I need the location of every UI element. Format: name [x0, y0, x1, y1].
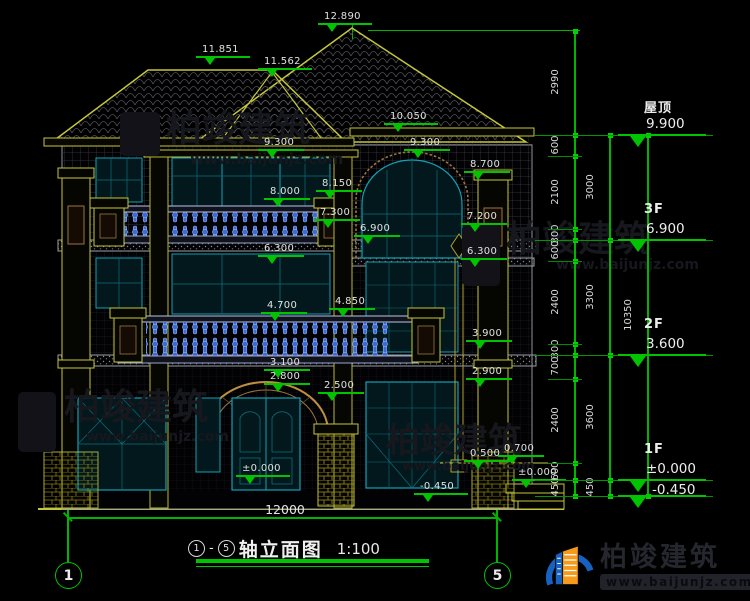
level-name: 1F	[644, 442, 664, 457]
elevation-value: 8.700	[464, 160, 510, 170]
level-value: 9.900	[646, 116, 685, 132]
elevation-marker: 4.850	[329, 297, 375, 310]
drawing-title: 1 - 5 轴立面图 1:100	[188, 535, 468, 562]
elevation-value: 3.100	[264, 358, 310, 368]
elevation-marker: 10.050	[384, 112, 438, 125]
title-underline-2	[196, 566, 429, 568]
dim-tick	[573, 29, 578, 34]
title-axis-from: 1	[188, 540, 205, 557]
elevation-value: 9.300	[258, 138, 304, 148]
elevation-value: 4.700	[261, 301, 307, 311]
title-axis-to: 5	[218, 540, 235, 557]
elevation-marker: 0.500	[464, 449, 510, 462]
elevation-marker: 6.300	[258, 244, 304, 257]
title-text: 轴立面图	[239, 535, 323, 562]
elevation-marker: 11.562	[258, 57, 312, 70]
elevation-marker: 2.800	[264, 372, 310, 385]
dim-value: 600	[551, 222, 561, 278]
elevation-value: 12.890	[318, 12, 372, 22]
annotation-layer: 12.89011.85111.56210.0509.3009.3008.7008…	[0, 0, 750, 601]
level-value: 6.900	[646, 221, 685, 237]
elevation-marker: 8.000	[264, 187, 310, 200]
elevation-value: 11.562	[258, 57, 312, 67]
dim-value: 10350	[624, 287, 634, 343]
title-underline	[196, 559, 429, 563]
dim-value: 450	[551, 459, 561, 515]
level-value: ±0.000	[646, 461, 696, 477]
elevation-value: 2.900	[466, 367, 512, 377]
elevation-marker: -0.450	[414, 482, 468, 495]
extension-line	[548, 463, 582, 464]
elevation-value: 10.050	[384, 112, 438, 122]
elevation-marker: 8.150	[316, 179, 362, 192]
elevation-value: 8.150	[316, 179, 362, 189]
elevation-marker: ±0.000	[236, 464, 290, 477]
elevation-marker: 7.300	[314, 208, 360, 221]
level-name: 3F	[644, 202, 664, 217]
logo-brand-text: 柏竣建筑	[600, 544, 750, 571]
elevation-marker: 7.200	[461, 212, 507, 225]
level-name: 屋顶	[644, 97, 672, 116]
extension-line	[548, 261, 582, 262]
level-triangle	[630, 356, 646, 375]
elevation-value: 11.851	[196, 45, 250, 55]
elevation-value: -0.450	[414, 482, 468, 492]
level-triangle	[630, 241, 646, 260]
dim-value: 3000	[586, 159, 596, 215]
dim-value: 2400	[551, 392, 561, 448]
level-value: 3.600	[646, 336, 685, 352]
elevation-marker: 2.500	[318, 381, 364, 394]
elevation-value: 7.200	[461, 212, 507, 222]
elevation-marker: 11.851	[196, 45, 250, 58]
dim-value: 700	[551, 338, 561, 394]
elevation-marker: 9.300	[404, 138, 450, 151]
title-dash: -	[209, 541, 214, 556]
dim-chain-line	[609, 135, 611, 496]
elevation-value: 7.300	[314, 208, 360, 218]
axis-bubble-1: 1	[55, 562, 82, 589]
elevation-marker: 12.890	[318, 12, 372, 25]
elevation-value: 9.300	[404, 138, 450, 148]
dim-value: 3600	[586, 389, 596, 445]
level-value: -0.450	[652, 482, 696, 498]
elevation-marker: 3.900	[466, 329, 512, 342]
elevation-value: 3.900	[466, 329, 512, 339]
title-scale: 1:100	[337, 540, 380, 558]
elevation-value: 6.300	[258, 244, 304, 254]
elevation-value: 6.900	[354, 224, 400, 234]
elevation-marker: 6.300	[461, 247, 507, 260]
axis-bubble-5: 5	[484, 562, 511, 589]
level-triangle	[630, 136, 646, 155]
dim-value: 3300	[586, 269, 596, 325]
dim-value: 2990	[551, 54, 561, 110]
elevation-marker: 4.700	[261, 301, 307, 314]
elevation-marker: 2.900	[466, 367, 512, 380]
dim-chain-line	[574, 31, 576, 496]
dim-value: 450	[586, 459, 596, 515]
elevation-value: 2.800	[264, 372, 310, 382]
elevation-value: 0.500	[464, 449, 510, 459]
elevation-value: 8.000	[264, 187, 310, 197]
extension-line	[548, 344, 582, 345]
elevation-value: ±0.000	[236, 464, 290, 474]
elevation-value: 6.300	[461, 247, 507, 257]
cad-elevation-drawing: 柏竣建筑 www.baijunjz.com 柏竣建筑 www.baijunjz.…	[0, 0, 750, 601]
extension-line	[548, 156, 582, 157]
elevation-value: 4.850	[329, 297, 375, 307]
level-triangle	[630, 497, 646, 516]
logo-website: www.baijunjz.com	[600, 574, 750, 590]
elevation-marker: 9.300	[258, 138, 304, 151]
company-logo: 柏竣建筑 www.baijunjz.com	[538, 539, 750, 595]
elevation-value: 2.500	[318, 381, 364, 391]
level-name: 2F	[644, 317, 664, 332]
extension-line	[548, 379, 582, 380]
elevation-marker: 3.100	[264, 358, 310, 371]
logo-icon	[538, 539, 594, 595]
overall-width-dimension: 12000	[240, 502, 330, 517]
elevation-marker: 8.700	[464, 160, 510, 173]
extension-line	[548, 229, 582, 230]
elevation-marker: 6.900	[354, 224, 400, 237]
